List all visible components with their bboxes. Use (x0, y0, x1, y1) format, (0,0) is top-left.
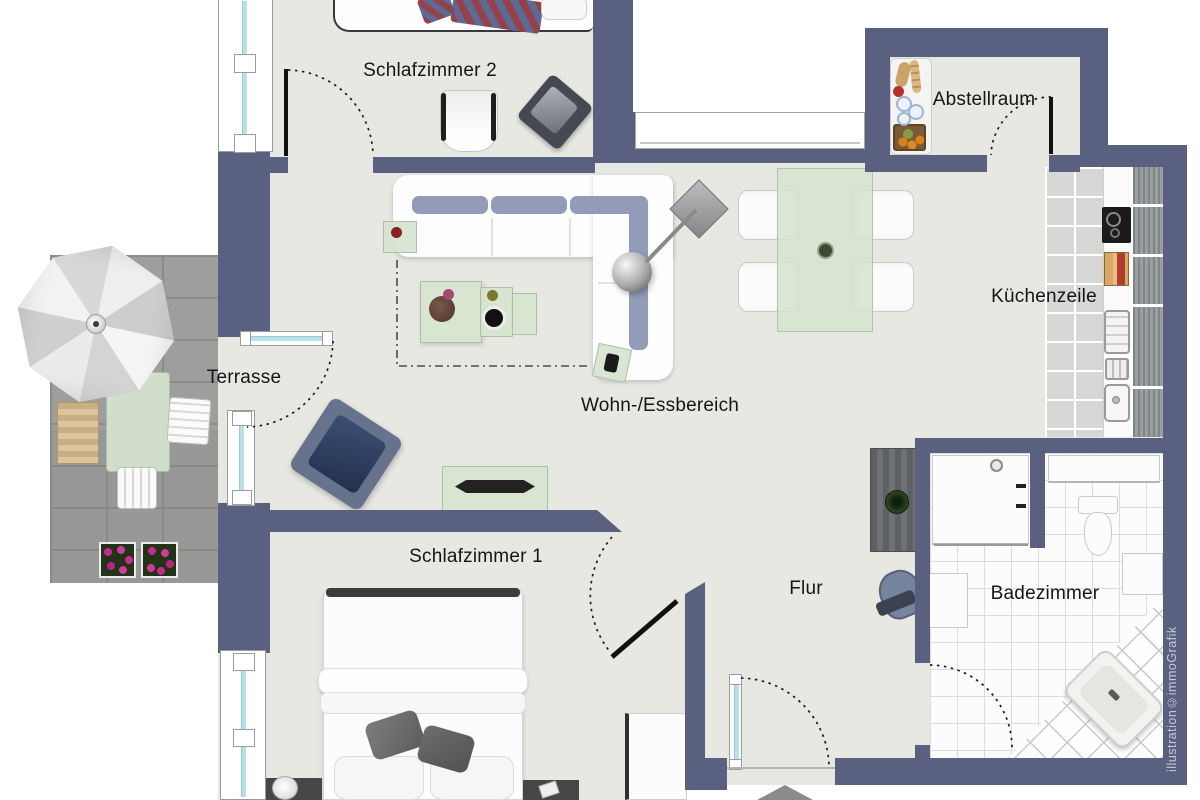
wall-storage-bottom-right (1049, 155, 1080, 172)
wall-bedroom1-top (270, 510, 597, 532)
wall-storage-bottom-left (865, 155, 987, 172)
parasol-pole-tip (93, 321, 99, 327)
wall-bedroom2-stub (270, 157, 288, 173)
wall-left-mid (218, 503, 270, 653)
wall-bottom-right (835, 758, 1163, 785)
chair-2-rail-right (491, 93, 496, 141)
window-connector (234, 54, 256, 73)
desk-plant (885, 490, 909, 514)
wall-storage-right (1080, 57, 1108, 145)
door-cap (729, 674, 742, 685)
room-label-wohn-essbereich: Wohn-/Essbereich (581, 395, 739, 417)
sofa-cushion-1 (412, 196, 488, 214)
room-label-terrasse: Terrasse (207, 367, 281, 389)
decor-vase (487, 290, 498, 301)
bathroom-shelf (1048, 455, 1160, 483)
coffee-table-small (511, 293, 537, 335)
wall-bath-left-stub (915, 745, 930, 758)
cabinet-divider-2 (1131, 254, 1163, 257)
washing-machine (928, 573, 968, 628)
window-connector (232, 490, 252, 505)
window-connector (233, 729, 255, 747)
wall-storage-left (865, 57, 890, 157)
wall-shower-partition (1030, 453, 1045, 548)
fruit-basket-icon (893, 124, 926, 151)
flower-planter-left (99, 542, 136, 578)
watermark: illustration©immoGrafik (1165, 577, 1179, 772)
entrance-door-leaf (729, 674, 742, 770)
kitchen-faucet (1112, 396, 1120, 404)
side-table-candle (383, 221, 417, 253)
shower (932, 455, 1029, 545)
window-connector (233, 653, 255, 671)
cabinet-divider-1 (1131, 204, 1163, 207)
wall-bath-left (915, 453, 930, 663)
bed-2-pillow (541, 0, 587, 20)
window-connector (234, 134, 256, 153)
chair-2-rail-left (441, 93, 446, 141)
door-glazing (734, 677, 739, 767)
candle (391, 227, 402, 238)
lounge-chair-right (166, 397, 211, 446)
bed-1-duvet-fold (318, 668, 528, 694)
entrance-threshold (727, 767, 835, 769)
room-label-schlafzimmer-1: Schlafzimmer 1 (409, 546, 543, 568)
sofa-seat-divider-1 (491, 218, 493, 256)
room-label-kuechenzeile: Küchenzeile (991, 286, 1097, 308)
room-label-badezimmer: Badezimmer (991, 583, 1100, 605)
sofa-cushion-2 (491, 196, 567, 214)
lounge-chair-bottom (117, 467, 157, 509)
kitchen-drainer (1104, 310, 1130, 354)
sofa-seat-divider-2 (569, 218, 571, 256)
cooktop-burner-small (1110, 228, 1120, 238)
cooktop-burner-large (1106, 212, 1121, 227)
window-glazing (241, 653, 246, 797)
nightstand-lamp (272, 776, 298, 800)
bed-1-duvet-fold-2 (320, 692, 526, 714)
room-label-flur: Flur (789, 578, 823, 600)
decor-bowl (482, 306, 506, 330)
wall-storage-top (865, 28, 1108, 57)
shower-head-icon (990, 459, 1003, 472)
window-terrace-fixed (227, 410, 255, 506)
wall-bath-top (915, 438, 1163, 453)
kitchen-cabinet-row (1131, 167, 1163, 437)
coffee-table-flower (443, 289, 454, 300)
room-label-schlafzimmer-2: Schlafzimmer 2 (363, 60, 497, 82)
plate-icon-3 (897, 112, 911, 126)
room-label-abstellraum: Abstellraum (933, 89, 1036, 111)
window-frame-line (640, 142, 860, 144)
outside-gap-top-right (1108, 112, 1187, 145)
dining-table-centerpiece (817, 242, 834, 259)
bed-1-headboard (326, 588, 520, 597)
shower-fixture-icon (1016, 484, 1026, 488)
kitchen-sink-grid (1105, 358, 1129, 380)
window-connector (232, 411, 252, 426)
window-glazing (242, 1, 247, 149)
arc-lamp-shade (612, 252, 652, 292)
coffee-table-tray (429, 296, 455, 322)
terrace-door-leaf (240, 331, 333, 346)
wall-entry-block (685, 758, 727, 790)
bed-1-pillow-white-1 (334, 756, 424, 800)
door-cap (322, 331, 333, 346)
bathroom-cabinet (1122, 553, 1163, 595)
tv-soundbar (455, 480, 535, 493)
window-top-band (635, 112, 865, 149)
door-glazing (243, 336, 330, 341)
entrance-arrow-icon (757, 785, 813, 800)
shower-fixture-icon-2 (1016, 504, 1026, 508)
cabinet-divider-3 (1131, 304, 1163, 307)
wall-bedroom1-hall (685, 594, 705, 758)
window-left-upper (218, 0, 273, 152)
wall-left-upper (218, 150, 270, 337)
wall-bedroom2-bottom (373, 157, 595, 173)
beach-mat (57, 402, 99, 464)
toilet-bowl (1084, 512, 1112, 556)
window-left-lower (220, 650, 266, 800)
cutting-board (1104, 252, 1129, 286)
flower-planter-right (141, 542, 178, 578)
cabinet-divider-4 (1131, 386, 1163, 389)
floor-plan: Schlafzimmer 2 Abstellraum Küchenzeile T… (0, 0, 1200, 800)
wardrobe (625, 713, 687, 800)
door-cap (240, 331, 251, 346)
chair-2-white (440, 90, 498, 152)
